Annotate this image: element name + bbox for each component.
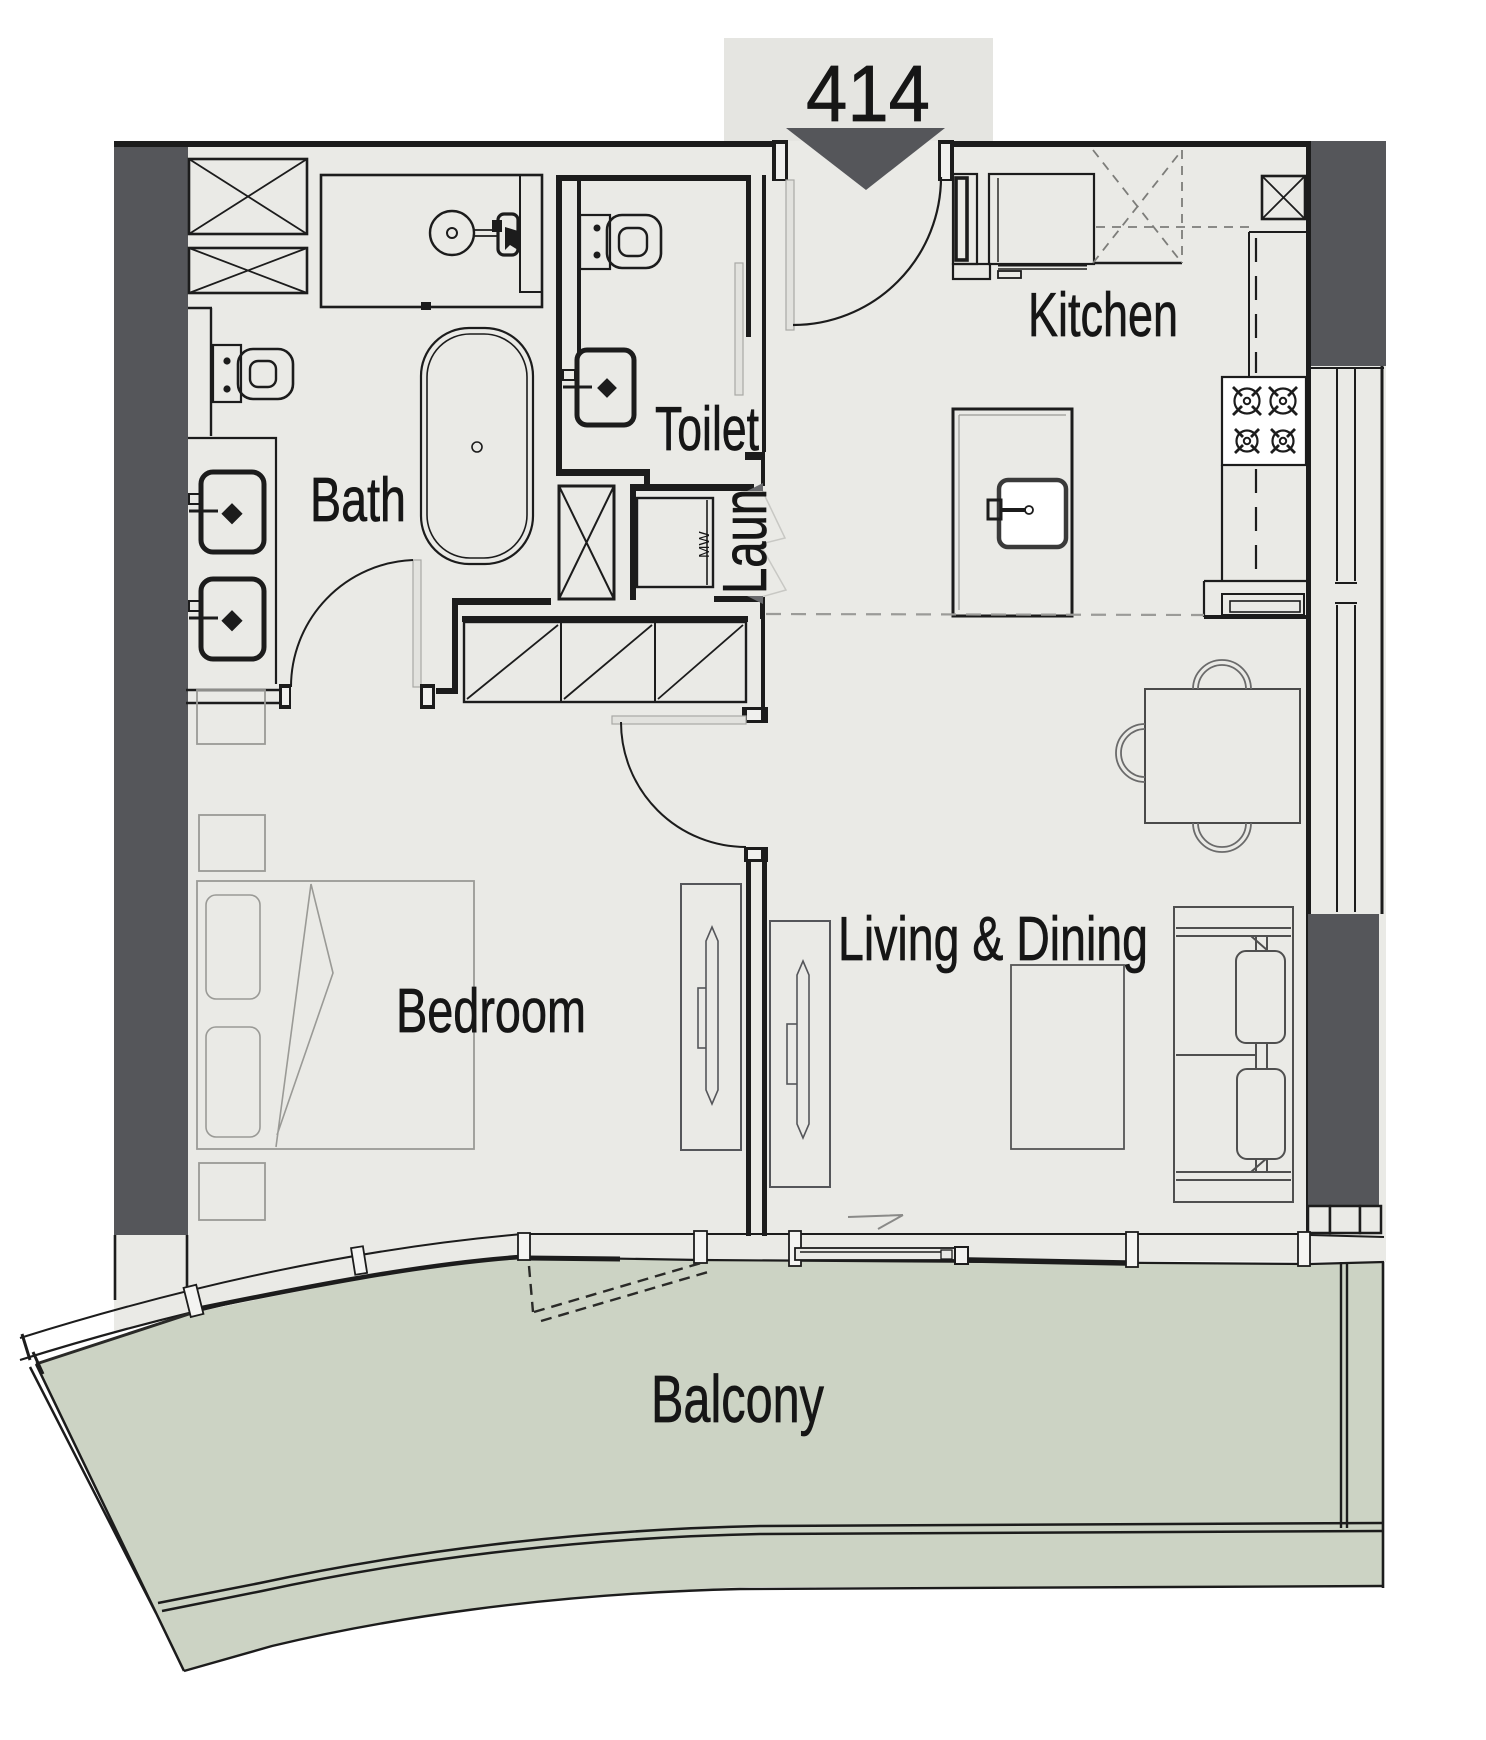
svg-text:Bedroom: Bedroom bbox=[396, 977, 586, 1046]
svg-text:Toilet: Toilet bbox=[655, 395, 759, 464]
svg-text:Laun: Laun bbox=[711, 489, 780, 594]
svg-text:414: 414 bbox=[806, 49, 930, 138]
svg-text:Bath: Bath bbox=[310, 466, 406, 535]
svg-text:Living & Dining: Living & Dining bbox=[838, 905, 1148, 974]
svg-text:Balcony: Balcony bbox=[651, 1362, 824, 1437]
svg-text:Kitchen: Kitchen bbox=[1028, 281, 1178, 350]
